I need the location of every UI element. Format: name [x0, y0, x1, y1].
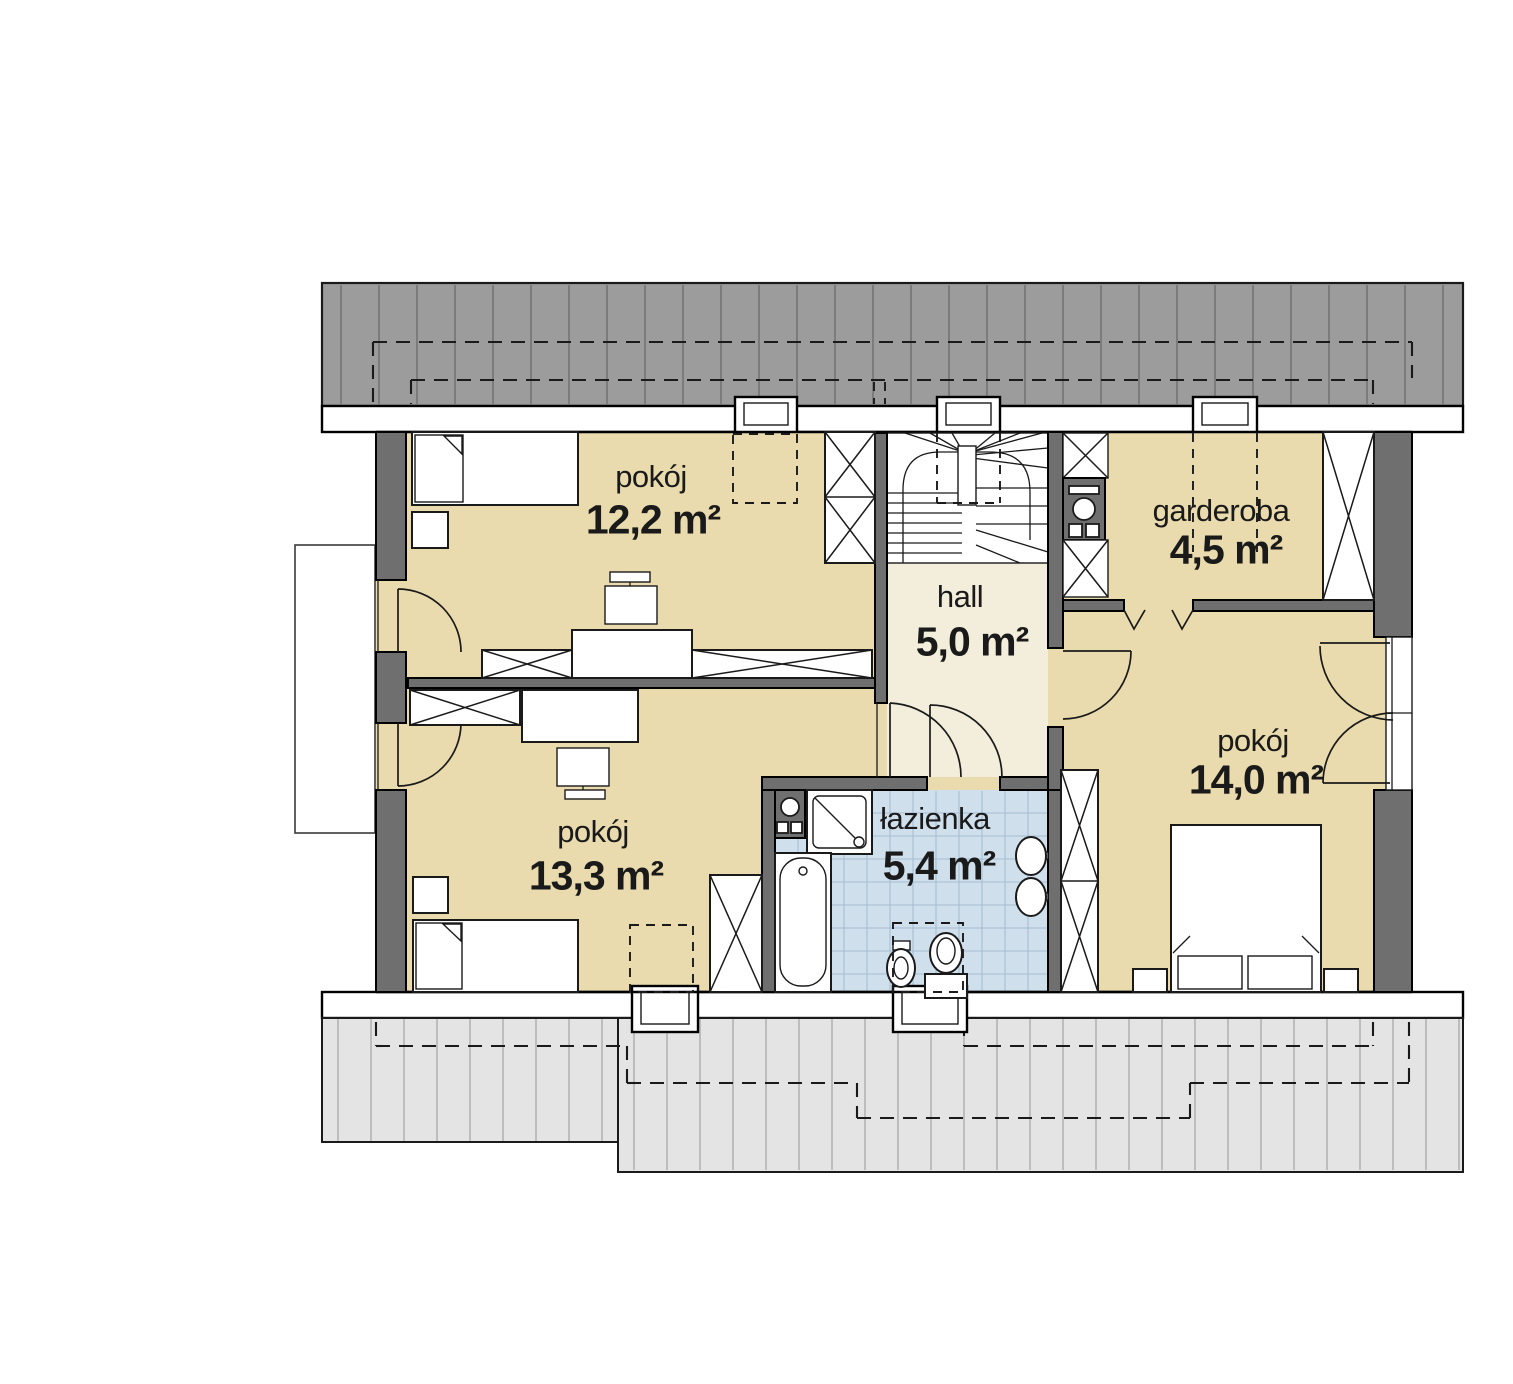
wall-left-b — [376, 652, 406, 723]
sideboard — [692, 650, 872, 678]
bathtub — [775, 853, 831, 992]
room-label: garderoba — [1153, 493, 1290, 529]
wall-garderoba-south-left — [1063, 600, 1124, 611]
room-label: pokój — [557, 814, 629, 850]
desk — [572, 630, 692, 678]
shower — [807, 790, 872, 854]
wall-left-a — [376, 432, 406, 580]
wall-right-top — [1374, 432, 1412, 637]
roof-bottom — [322, 1018, 1463, 1172]
terrace-outline — [295, 545, 375, 833]
nightstand — [1133, 969, 1167, 992]
wall-left-c — [376, 790, 406, 992]
nightstand — [412, 512, 448, 548]
wall-hall-west — [875, 433, 887, 703]
room-area-label: 5,0 m² — [916, 619, 1029, 666]
room-area-label: 5,4 m² — [883, 843, 996, 890]
wall-bath-west — [762, 790, 775, 992]
room-area-label: 14,0 m² — [1189, 757, 1323, 804]
pillow — [1248, 956, 1312, 989]
dormer-top-1 — [735, 397, 797, 433]
wardrobe — [1323, 432, 1374, 600]
shelf-icon — [1069, 486, 1099, 494]
wardrobe — [710, 875, 762, 992]
dormer-top-stairs — [937, 397, 1000, 433]
wall-garderoba-south-right — [1193, 600, 1374, 611]
meter-icon — [1086, 524, 1099, 537]
floor-plan: pokój 12,2 m² garderoba 4,5 m² hall 5,0 … — [0, 0, 1513, 1384]
wall-bath-north-left — [762, 777, 927, 790]
room-label: hall — [937, 579, 983, 615]
roof-top — [322, 283, 1463, 406]
room-label: pokój — [615, 459, 687, 495]
stairs — [885, 433, 1048, 563]
dormer-top-garderoba — [1193, 397, 1257, 433]
monitor-icon — [557, 748, 609, 799]
wall-stairs-east — [1048, 432, 1063, 648]
wall-center-divider — [408, 678, 875, 688]
room-area-label: 13,3 m² — [529, 853, 663, 900]
room-label: łazienka — [880, 801, 990, 837]
washing-machine-icon — [775, 790, 805, 838]
sideboard — [410, 690, 520, 725]
wall-right-bottom — [1374, 790, 1412, 992]
shaft-cabinet-top — [1063, 433, 1108, 478]
monitor-icon — [605, 572, 657, 624]
wardrobe — [825, 432, 875, 563]
pillow — [1178, 956, 1242, 989]
room-area-label: 12,2 m² — [586, 497, 720, 544]
nightstand — [1324, 969, 1358, 992]
eaves-top — [322, 406, 1463, 432]
wall-bath-north-right — [1000, 777, 1048, 790]
floor-plan-drawing — [0, 0, 1513, 1384]
technical-shaft — [1063, 433, 1108, 597]
room-area-label: 4,5 m² — [1170, 527, 1283, 574]
desk — [522, 690, 638, 742]
sideboard — [482, 650, 572, 678]
nightstand — [413, 877, 448, 913]
wardrobe — [1061, 770, 1098, 992]
shaft-cabinet-bottom — [1063, 540, 1108, 597]
room-label: pokój — [1217, 723, 1289, 759]
boiler-icon — [1073, 498, 1095, 520]
meter-icon — [1069, 524, 1082, 537]
